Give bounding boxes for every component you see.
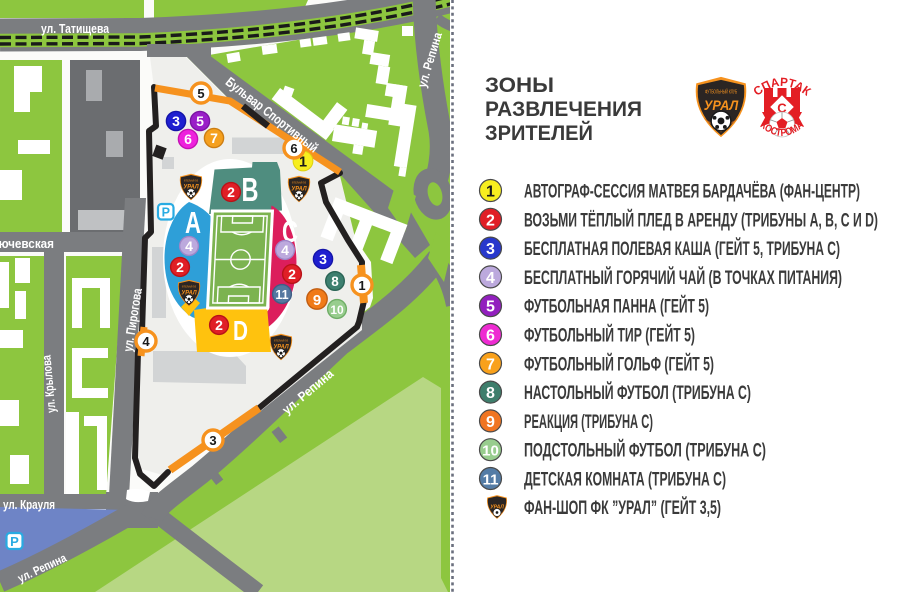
svg-text:ЗРИТЕЛЕЙ: ЗРИТЕЛЕЙ (485, 121, 593, 145)
svg-text:ул. Татищева: ул. Татищева (41, 21, 110, 36)
svg-text:ФУТБОЛЬНЫЙ КЛУБ: ФУТБОЛЬНЫЙ КЛУБ (292, 180, 306, 184)
svg-text:1: 1 (358, 278, 365, 293)
svg-text:8: 8 (331, 274, 339, 289)
svg-text:5: 5 (196, 113, 204, 129)
svg-text:3: 3 (486, 241, 495, 258)
svg-text:ПОДСТОЛЬНЫЙ ФУТБОЛ (ТРИБУНА С): ПОДСТОЛЬНЫЙ ФУТБОЛ (ТРИБУНА С) (524, 438, 766, 462)
svg-text:A: A (185, 205, 201, 240)
svg-text:10: 10 (330, 303, 344, 317)
svg-text:9: 9 (313, 292, 321, 309)
svg-text:6: 6 (184, 131, 192, 147)
svg-text:2: 2 (215, 317, 223, 333)
svg-text:P: P (10, 534, 19, 549)
svg-text:ДЕТСКАЯ КОМНАТА (ТРИБУНА С): ДЕТСКАЯ КОМНАТА (ТРИБУНА С) (524, 469, 726, 491)
svg-text:РАЗВЛЕЧЕНИЯ: РАЗВЛЕЧЕНИЯ (485, 98, 642, 121)
svg-text:ФУТБОЛЬНЫЙ ТИР (ГЕЙТ 5): ФУТБОЛЬНЫЙ ТИР (ГЕЙТ 5) (524, 323, 695, 347)
svg-text:11: 11 (483, 472, 499, 489)
svg-text:ФУТБОЛЬНЫЙ КЛУБ: ФУТБОЛЬНЫЙ КЛУБ (182, 284, 196, 288)
svg-text:Ключевская: Ключевская (0, 236, 54, 251)
svg-text:3: 3 (172, 113, 180, 129)
svg-text:БЕСПЛАТНАЯ ПОЛЕВАЯ КАША (ГЕЙТ: БЕСПЛАТНАЯ ПОЛЕВАЯ КАША (ГЕЙТ 5, ТРИБУНА… (524, 236, 840, 260)
svg-text:2: 2 (288, 266, 296, 282)
svg-text:ЗОНЫ: ЗОНЫ (485, 74, 554, 97)
svg-text:10: 10 (482, 443, 499, 460)
svg-text:4: 4 (281, 242, 289, 258)
svg-text:2: 2 (176, 259, 184, 275)
svg-text:4: 4 (486, 270, 495, 287)
svg-text:D: D (233, 315, 248, 346)
svg-text:ВОЗЬМИ ТЁПЛЫЙ ПЛЕД В АРЕНДУ (Т: ВОЗЬМИ ТЁПЛЫЙ ПЛЕД В АРЕНДУ (ТРИБУНЫ А, … (524, 207, 878, 231)
svg-text:11: 11 (275, 288, 288, 302)
svg-text:4: 4 (185, 238, 193, 254)
svg-text:2: 2 (227, 184, 235, 200)
svg-text:ул. Крауля: ул. Крауля (3, 498, 55, 512)
svg-text:БЕСПЛАТНЫЙ ГОРЯЧИЙ ЧАЙ (В ТОЧК: БЕСПЛАТНЫЙ ГОРЯЧИЙ ЧАЙ (В ТОЧКАХ ПИТАНИЯ… (524, 265, 842, 289)
svg-text:3: 3 (319, 251, 327, 267)
svg-text:7: 7 (486, 356, 495, 373)
svg-text:9: 9 (486, 414, 495, 431)
svg-text:ФУТБОЛЬНЫЙ ГОЛЬФ (ГЕЙТ 5): ФУТБОЛЬНЫЙ ГОЛЬФ (ГЕЙТ 5) (524, 351, 714, 375)
svg-text:8: 8 (486, 385, 495, 402)
svg-text:ФУТБОЛЬНЫЙ КЛУБ: ФУТБОЛЬНЫЙ КЛУБ (274, 338, 288, 342)
svg-text:B: B (242, 171, 259, 208)
svg-text:P: P (162, 206, 170, 220)
svg-text:ФУТБОЛЬНЫЙ КЛУБ: ФУТБОЛЬНЫЙ КЛУБ (184, 178, 198, 182)
svg-text:3: 3 (209, 433, 216, 448)
svg-text:РЕАКЦИЯ (ТРИБУНА С): РЕАКЦИЯ (ТРИБУНА С) (524, 411, 653, 433)
svg-text:НАСТОЛЬНЫЙ ФУТБОЛ (ТРИБУНА С): НАСТОЛЬНЫЙ ФУТБОЛ (ТРИБУНА С) (524, 380, 751, 404)
svg-text:5: 5 (486, 299, 495, 316)
svg-text:ФУТБОЛЬНАЯ ПАННА (ГЕЙТ 5): ФУТБОЛЬНАЯ ПАННА (ГЕЙТ 5) (524, 294, 709, 318)
svg-text:ФАН-ШОП ФК ”УРАЛ” (ГЕЙТ 3,5): ФАН-ШОП ФК ”УРАЛ” (ГЕЙТ 3,5) (524, 495, 721, 519)
svg-text:ФУТБОЛЬНЫЙ КЛУБ: ФУТБОЛЬНЫЙ КЛУБ (705, 88, 737, 96)
svg-text:5: 5 (197, 86, 204, 101)
svg-text:1: 1 (486, 184, 495, 201)
svg-text:6: 6 (486, 328, 495, 345)
svg-text:2: 2 (486, 212, 495, 229)
svg-text:АВТОГРАФ-СЕССИЯ МАТВЕЯ БАРДАЧЁ: АВТОГРАФ-СЕССИЯ МАТВЕЯ БАРДАЧЁВА (ФАН-ЦЕ… (524, 180, 860, 203)
svg-text:7: 7 (210, 130, 218, 146)
svg-text:4: 4 (142, 334, 150, 349)
